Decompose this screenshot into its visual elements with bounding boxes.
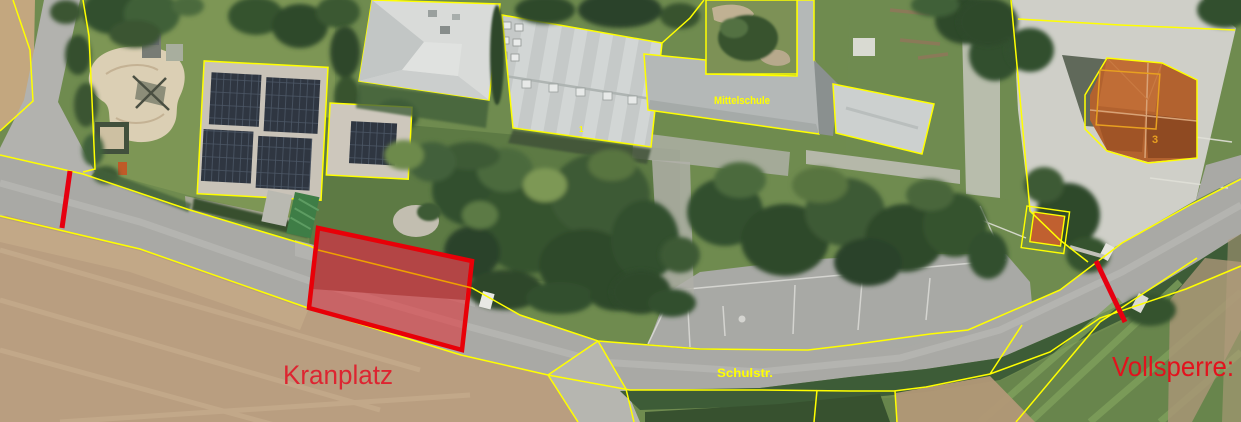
svg-text:Schulstr.: Schulstr.	[717, 366, 773, 380]
svg-text:Mittelschule: Mittelschule	[714, 95, 770, 107]
svg-text:3: 3	[1152, 134, 1158, 146]
svg-text:Kranplatz: Kranplatz	[283, 360, 393, 390]
svg-text:1: 1	[579, 125, 584, 134]
svg-text:Vollsperre:: Vollsperre:	[1112, 351, 1234, 382]
